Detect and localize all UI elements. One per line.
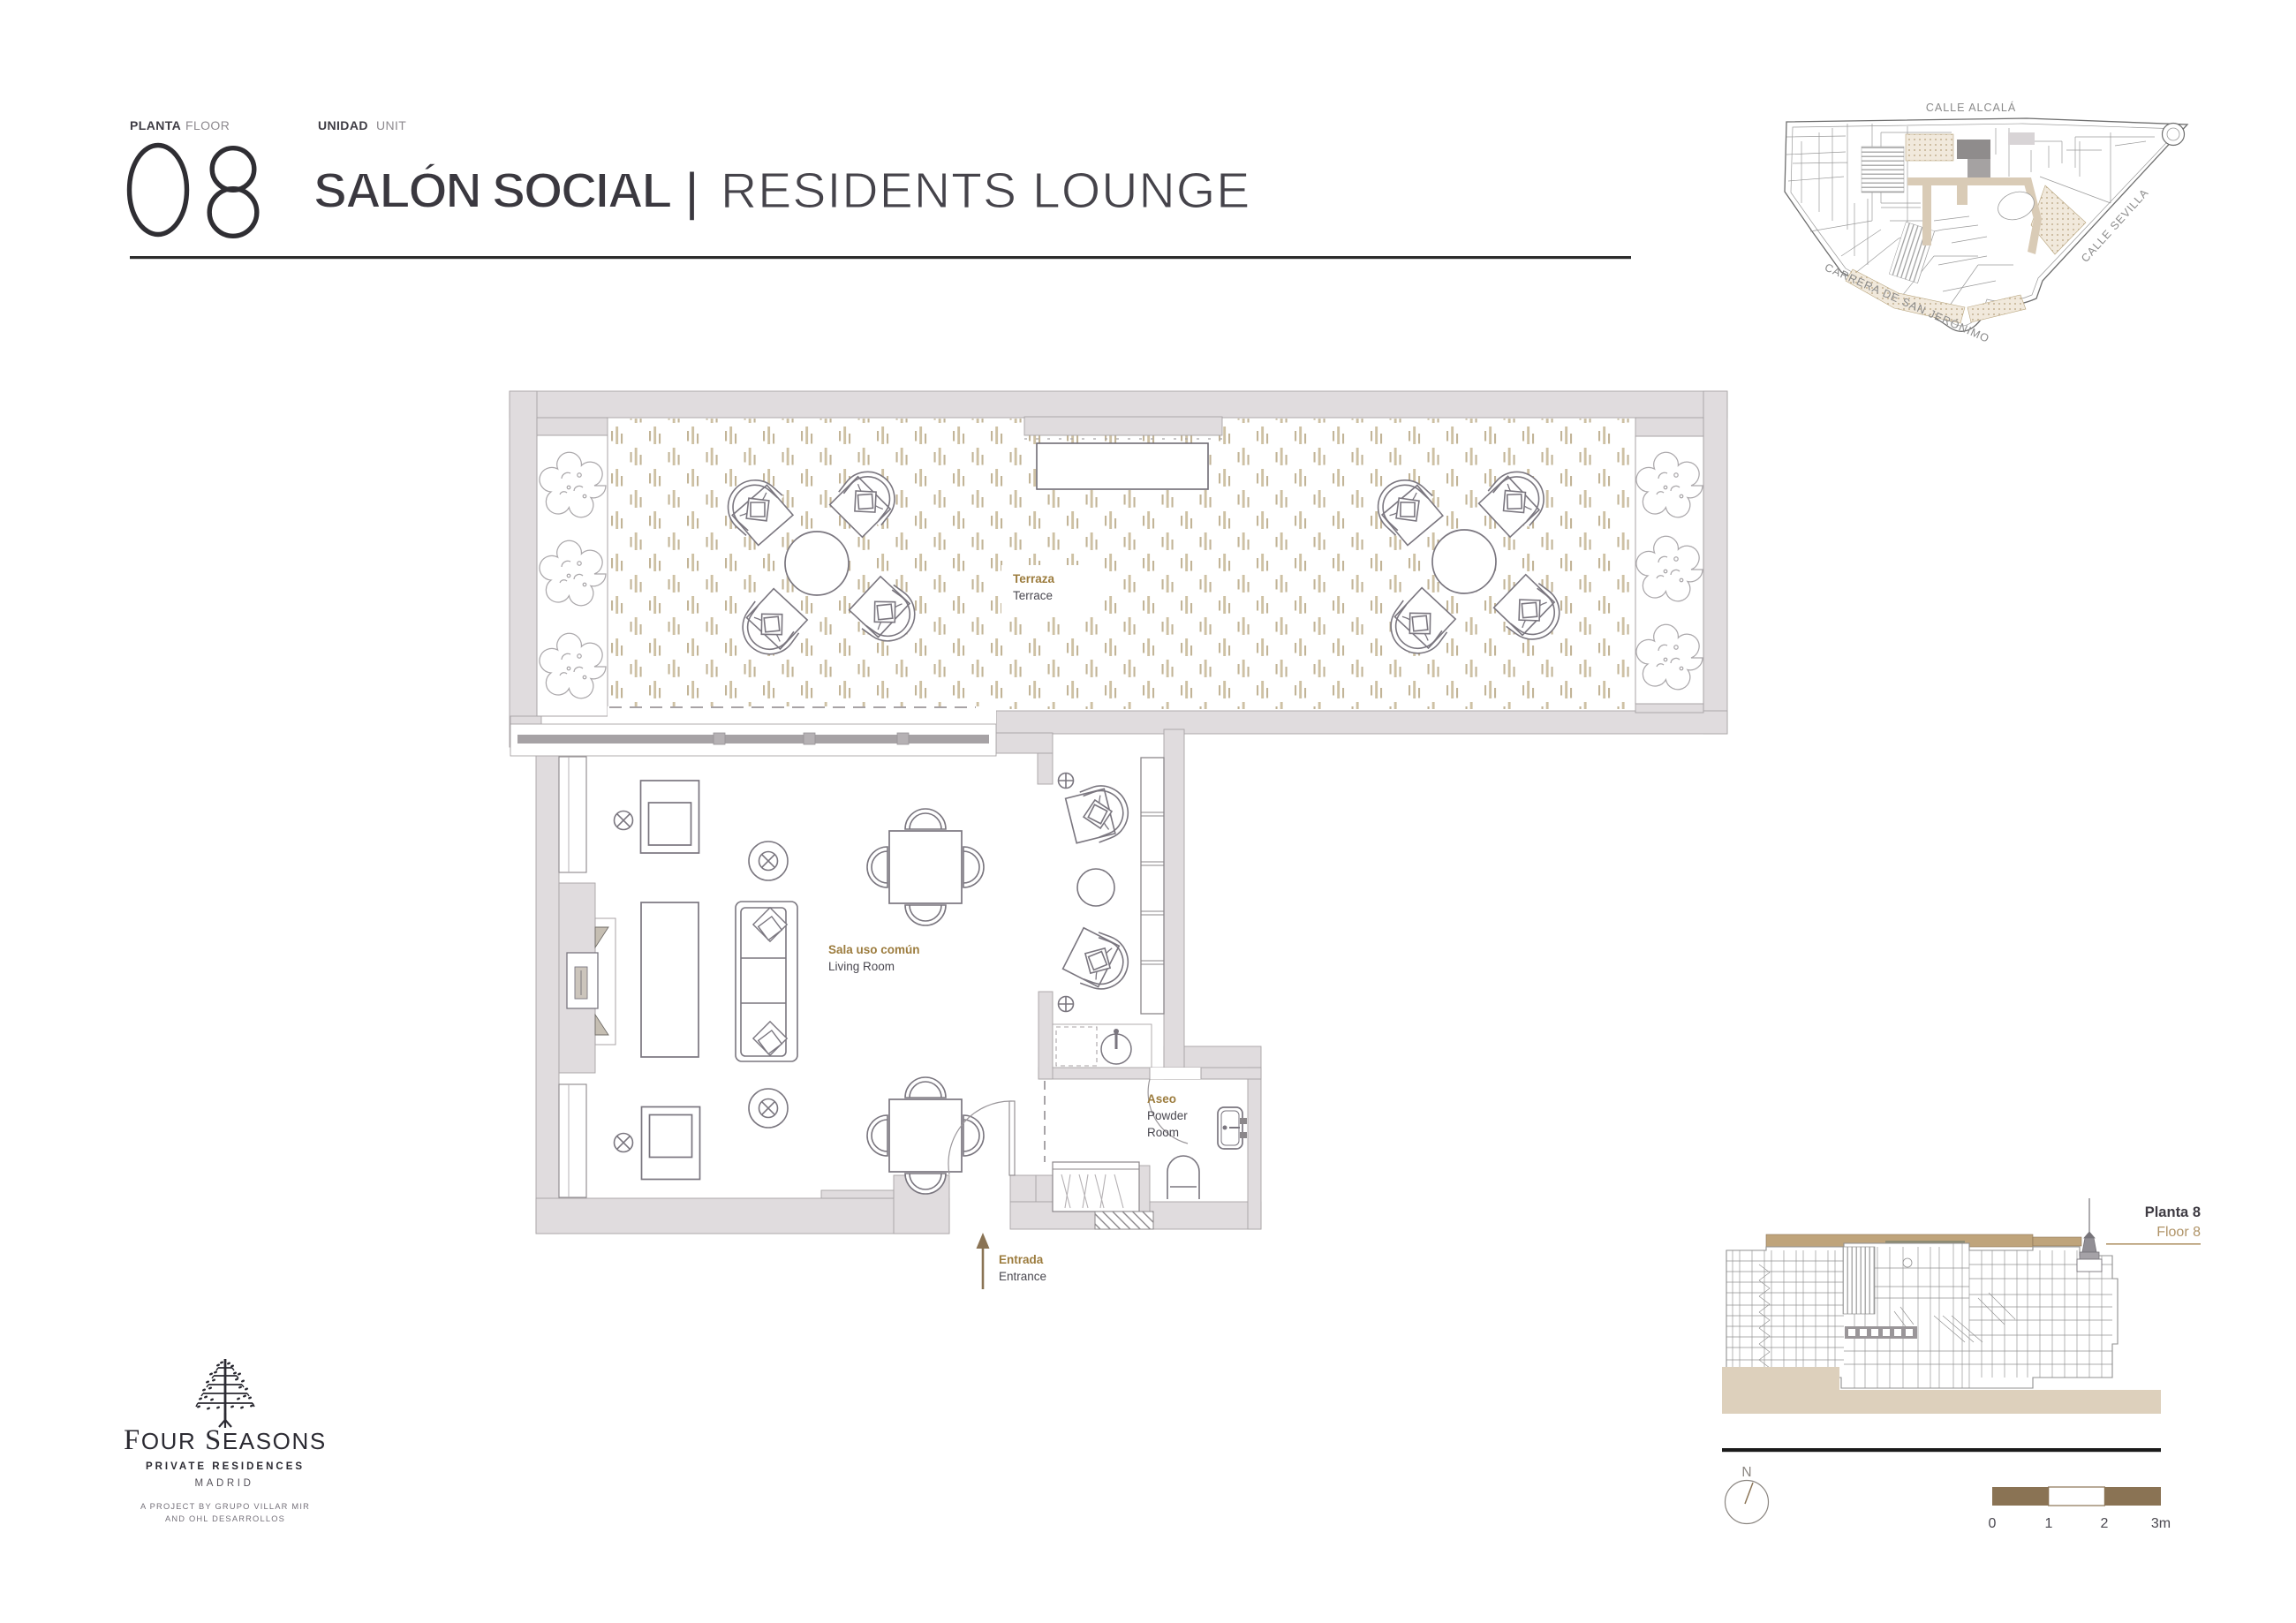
svg-text:FLOOR: FLOOR [185, 118, 230, 132]
svg-text:SALÓN SOCIAL: SALÓN SOCIAL [313, 162, 672, 219]
svg-text:CALLE ALCALÁ: CALLE ALCALÁ [1926, 101, 2016, 114]
svg-text:UNIDAD: UNIDAD [318, 118, 368, 132]
svg-text:Aseo: Aseo [1147, 1092, 1176, 1106]
svg-text:MADRID: MADRID [195, 1478, 254, 1489]
svg-text:2: 2 [2101, 1516, 2109, 1531]
svg-text:UNIT: UNIT [376, 118, 406, 132]
svg-text:N: N [1741, 1465, 1751, 1480]
svg-text:RESIDENTS LOUNGE: RESIDENTS LOUNGE [721, 162, 1250, 219]
svg-text:Planta 8: Planta 8 [2145, 1204, 2201, 1220]
svg-text:Room: Room [1147, 1126, 1179, 1139]
svg-text:PLANTA: PLANTA [130, 118, 181, 132]
svg-text:A PROJECT BY GRUPO VILLAR MIR: A PROJECT BY GRUPO VILLAR MIR [140, 1502, 310, 1511]
svg-text:Powder: Powder [1147, 1109, 1188, 1122]
svg-text:Terraza: Terraza [1013, 572, 1055, 585]
svg-text:AND OHL DESARROLLOS: AND OHL DESARROLLOS [165, 1514, 285, 1523]
svg-text:PRIVATE RESIDENCES: PRIVATE RESIDENCES [146, 1461, 305, 1472]
svg-text:1: 1 [2045, 1516, 2053, 1531]
svg-text:Entrada: Entrada [999, 1253, 1044, 1266]
svg-text:3m: 3m [2151, 1516, 2171, 1531]
svg-text:Entrance: Entrance [999, 1270, 1046, 1283]
svg-text:0: 0 [1989, 1516, 1997, 1531]
svg-text:Sala uso común: Sala uso común [828, 943, 920, 956]
svg-text:Floor 8: Floor 8 [2156, 1225, 2201, 1240]
svg-text:Terrace: Terrace [1013, 589, 1053, 602]
svg-text:FOUR SEASONS: FOUR SEASONS [124, 1424, 327, 1456]
svg-text:Living Room: Living Room [828, 960, 895, 973]
svg-text:|: | [685, 163, 699, 221]
